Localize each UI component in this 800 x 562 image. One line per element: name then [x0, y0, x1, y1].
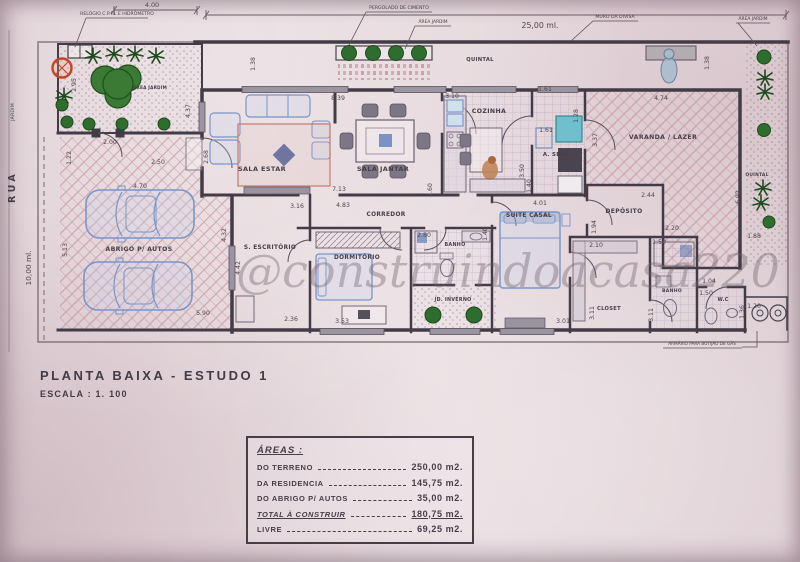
- note-muro-divisa-leader: [571, 21, 593, 41]
- shrub: [412, 46, 427, 61]
- dimension-lines-layer: [111, 6, 789, 20]
- note-area-jardim-top: ÁREA JARDIM: [419, 18, 448, 25]
- plant: [425, 307, 441, 323]
- kitchen-counter: [470, 179, 525, 192]
- area-row: TOTAL À CONSTRUIR180,75 m2.: [257, 509, 463, 519]
- areas-table-rows: DO TERRENO250,00 m2.DA RESIDENCIA145,75 …: [257, 462, 463, 534]
- dotted-leader: [351, 515, 407, 517]
- dimension-label: 2.00: [103, 139, 117, 146]
- kitchen-sink: [447, 100, 463, 112]
- dimension-label: 2.36: [284, 316, 298, 323]
- shrub: [366, 46, 381, 61]
- watermark-text: @construindoacasa220: [236, 244, 780, 298]
- area-row: DA RESIDENCIA145,75 m2.: [257, 478, 463, 488]
- dimension-label: 1.36: [739, 305, 746, 319]
- dimension-label: 5.90: [196, 310, 210, 317]
- room-label-area-jardim: ÁREA JARDIM: [133, 85, 167, 90]
- street-label: RUA: [7, 171, 18, 203]
- note-pergolado-leader: [349, 12, 366, 45]
- dimension-label: 8.39: [331, 95, 345, 102]
- dimension-label: 25,00 ml.: [521, 21, 558, 30]
- area-row: LIVRE69,25 m2.: [257, 524, 463, 534]
- area-row-value: 35,00 m2.: [417, 493, 463, 503]
- room-label-cozinha: COZINHA: [472, 108, 506, 115]
- room-label-a-serv: A. SERV: [543, 152, 570, 158]
- dimension-label: 7.13: [332, 186, 346, 193]
- room-label-sala-estar: SALA ESTAR: [238, 165, 286, 173]
- areas-table: ÁREAS : DO TERRENO250,00 m2.DA RESIDENCI…: [246, 436, 474, 544]
- dimension-label: 2.95: [71, 78, 78, 92]
- dimension-label: 3.10: [445, 93, 459, 100]
- dimension-label: 3.11: [648, 308, 655, 322]
- note-armario-gas: ARMÁRIO PARA BOTIJÃO DE GÁS: [668, 341, 736, 346]
- dimension-label: 1.20: [747, 303, 761, 310]
- dimension-label: 4.00: [145, 1, 159, 9]
- kitchen-chair: [460, 134, 471, 147]
- window: [199, 102, 205, 132]
- area-row-label: LIVRE: [257, 525, 282, 534]
- kitchen-chair: [460, 152, 471, 165]
- window: [229, 246, 235, 290]
- plant: [466, 307, 482, 323]
- suite-dresser: [505, 318, 545, 328]
- room-label-suite-casal: SUITE CASAL: [506, 213, 552, 219]
- area-row-label: DO TERRENO: [257, 463, 313, 472]
- dotted-leader: [318, 468, 406, 470]
- room-label-quintal-top: QUINTAL: [466, 57, 494, 63]
- area-row-value: 180,75 m2.: [411, 509, 463, 519]
- room-label-abrigo-autos: ABRIGO P/ AUTOS: [105, 246, 172, 253]
- dimension-label: 1.40: [482, 227, 489, 241]
- dimension-label: 4.70: [133, 183, 147, 190]
- area-row: DO TERRENO250,00 m2.: [257, 462, 463, 472]
- dimension-label: 2.44: [641, 192, 655, 199]
- room-label-quintal-right: QUINTAL: [745, 172, 768, 178]
- desk-monitor: [358, 310, 370, 319]
- note-muro-divisa: MURO DA DIVISA: [595, 14, 635, 20]
- dimension-label: 1.61: [538, 86, 552, 93]
- window: [242, 87, 348, 93]
- nightstand: [562, 214, 570, 226]
- area-row-value: 69,25 m2.: [417, 524, 463, 534]
- kitchen-sink: [447, 114, 463, 126]
- garden-statue: [661, 57, 677, 83]
- area-row: DO ABRIGO P/ AUTOS35,00 m2.: [257, 493, 463, 503]
- shrub: [342, 46, 357, 61]
- area-row-label: TOTAL À CONSTRUIR: [257, 510, 346, 519]
- window: [500, 329, 554, 335]
- armchair: [210, 113, 240, 137]
- dimension-label: 4.01: [533, 200, 547, 207]
- car-2: [84, 258, 192, 314]
- room-label-corredor: CORREDOR: [366, 212, 405, 218]
- gas-cylinder: [770, 305, 786, 321]
- dimension-label: 3.01: [556, 318, 570, 325]
- note-relogio-cpfl: RELÓGIO C.P.F.L E HIDRÔMETRO: [80, 10, 154, 17]
- dimension-label: 1.28: [573, 109, 580, 123]
- scale-label: ESCALA : 1. 100: [40, 389, 269, 399]
- scanned-floor-plan-page: SALA ESTARSALA JANTARCOZINHAA. SERVVARAN…: [0, 0, 800, 562]
- area-row-label: DO ABRIGO P/ AUTOS: [257, 494, 348, 503]
- note-pergolado: PERGOLADO DE CIMENTO: [369, 5, 429, 11]
- window: [452, 87, 516, 93]
- dimension-label: 3.60: [427, 183, 434, 197]
- dimension-label: 3.53: [335, 318, 349, 325]
- dotted-leader: [353, 499, 412, 501]
- pergola-slats: [338, 62, 430, 80]
- note-armario-gas-leader: [742, 331, 757, 347]
- room-label-sala-jantar: SALA JANTAR: [357, 165, 409, 173]
- dimension-label: 4.74: [654, 95, 668, 102]
- dim-line-25m: [203, 10, 789, 20]
- armchair: [210, 140, 240, 164]
- car-1: [86, 186, 194, 242]
- dimension-label: 1.40: [526, 179, 533, 193]
- window: [320, 329, 384, 335]
- dimension-label: 4.32: [221, 228, 228, 242]
- dimension-label: 6.92: [735, 190, 742, 204]
- office-cabinet: [236, 296, 254, 322]
- dimension-label: 1.38: [250, 57, 257, 71]
- dimension-label: 2.20: [665, 225, 679, 232]
- washing-machine: [558, 176, 582, 193]
- dimension-label: 3.50: [519, 164, 526, 178]
- dimension-label: 2.80: [417, 232, 431, 239]
- dimension-label: 2.68: [203, 150, 210, 164]
- area-row-value: 145,75 m2.: [411, 478, 463, 488]
- window: [430, 329, 480, 335]
- dimension-label: 1.61: [539, 127, 553, 134]
- dimension-label: 4.83: [336, 202, 350, 209]
- window: [394, 87, 446, 93]
- dimension-label: 10,00 ml.: [24, 250, 33, 285]
- page-title: PLANTA BAIXA - ESTUDO 1: [40, 368, 269, 383]
- dimension-label: 1.22: [66, 151, 73, 165]
- dotted-leader: [287, 530, 412, 532]
- shrub: [389, 46, 404, 61]
- dimension-label: 3.37: [592, 133, 599, 147]
- dimension-label: 5.13: [62, 243, 69, 257]
- dimension-label: 1.38: [704, 56, 711, 70]
- dimension-label: 4.37: [185, 104, 192, 118]
- area-row-label: DA RESIDENCIA: [257, 479, 324, 488]
- dimension-label: 3.16: [290, 203, 304, 210]
- entry-step: [186, 138, 202, 170]
- sofa: [246, 95, 310, 117]
- table-centerpiece: [379, 134, 392, 147]
- dotted-leader: [329, 484, 407, 486]
- area-row-value: 250,00 m2.: [411, 462, 463, 472]
- dimension-label: 2.50: [151, 159, 165, 166]
- room-label-closet: CLOSET: [597, 306, 621, 312]
- title-block: PLANTA BAIXA - ESTUDO 1 ESCALA : 1. 100: [40, 368, 269, 399]
- jardim-label: JARDIM: [10, 103, 16, 122]
- note-area-jardim-right: ÁREA JARDIM: [739, 15, 768, 22]
- room-label-varanda: VARANDA / LAZER: [629, 134, 697, 141]
- room-label-deposito: DEPÓSITO: [605, 208, 642, 215]
- areas-table-heading: ÁREAS :: [257, 445, 463, 456]
- dimension-label: 1.88: [747, 233, 761, 240]
- tv-rack: [244, 187, 310, 194]
- person-figure-head: [488, 156, 496, 164]
- dimension-label: 1.94: [591, 220, 598, 234]
- dimension-label: 3.11: [589, 306, 596, 320]
